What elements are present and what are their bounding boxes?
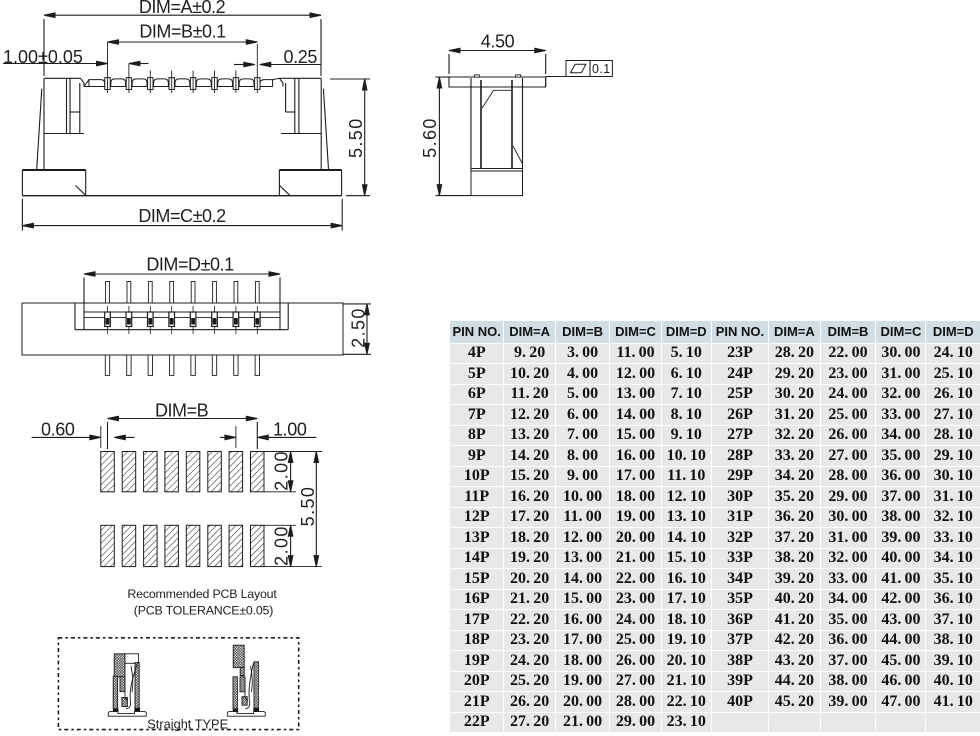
svg-text:Straight TYPE: Straight TYPE bbox=[147, 716, 228, 731]
svg-text:(PCB TOLERANCE±0.05): (PCB TOLERANCE±0.05) bbox=[134, 604, 273, 618]
svg-text:4.50: 4.50 bbox=[481, 31, 515, 51]
svg-text:5.50: 5.50 bbox=[298, 486, 318, 527]
svg-text:0.60: 0.60 bbox=[41, 419, 75, 439]
svg-text:2.00: 2.00 bbox=[272, 450, 292, 491]
svg-text:1.00±0.05: 1.00±0.05 bbox=[3, 47, 83, 67]
svg-text:1.00: 1.00 bbox=[273, 419, 307, 439]
svg-text:0.1: 0.1 bbox=[592, 62, 611, 76]
svg-text:DIM=B±0.1: DIM=B±0.1 bbox=[139, 21, 226, 41]
svg-text:DIM=D±0.1: DIM=D±0.1 bbox=[146, 255, 234, 275]
svg-text:DIM=C±0.2: DIM=C±0.2 bbox=[138, 206, 226, 226]
svg-text:Recommended PCB Layout: Recommended PCB Layout bbox=[127, 587, 277, 601]
svg-text:5.50: 5.50 bbox=[346, 117, 366, 158]
svg-text:5.60: 5.60 bbox=[420, 117, 440, 158]
svg-text:DIM=B: DIM=B bbox=[155, 401, 209, 421]
svg-text:2.00: 2.00 bbox=[272, 525, 292, 566]
svg-text:2.50: 2.50 bbox=[349, 307, 369, 348]
svg-text:DIM=A±0.2: DIM=A±0.2 bbox=[139, 0, 226, 17]
